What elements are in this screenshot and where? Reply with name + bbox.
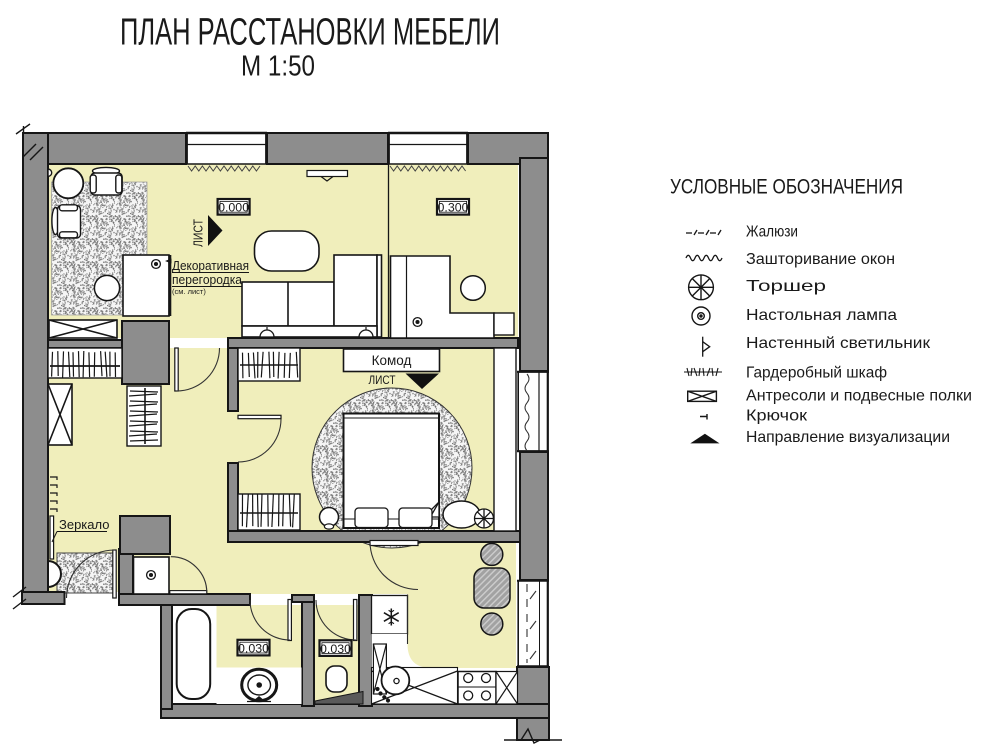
svg-text:0.030: 0.030 bbox=[238, 641, 269, 655]
svg-text:ЛИСТ: ЛИСТ bbox=[369, 373, 397, 387]
svg-text:Декоративная: Декоративная bbox=[172, 258, 249, 273]
svg-text:ЛИСТ: ЛИСТ bbox=[191, 219, 206, 247]
svg-text:Настенный светильник: Настенный светильник bbox=[746, 335, 931, 352]
svg-text:Крючок: Крючок bbox=[746, 408, 808, 425]
svg-text:Настольная лампа: Настольная лампа bbox=[746, 307, 897, 324]
svg-text:(см. лист): (см. лист) bbox=[172, 287, 206, 296]
svg-text:перегородка: перегородка bbox=[172, 272, 243, 287]
svg-text:Зеркало: Зеркало bbox=[59, 517, 109, 532]
svg-text:М 1:50: М 1:50 bbox=[241, 51, 315, 83]
svg-text:0.000: 0.000 bbox=[218, 201, 249, 215]
svg-text:Гардеробный шкаф: Гардеробный шкаф bbox=[746, 365, 887, 382]
svg-text:Жалюзи: Жалюзи bbox=[746, 224, 798, 241]
svg-text:УСЛОВНЫЕ ОБОЗНАЧЕНИЯ: УСЛОВНЫЕ ОБОЗНАЧЕНИЯ bbox=[670, 176, 903, 199]
svg-text:Торшер: Торшер bbox=[746, 278, 826, 295]
svg-text:Антресоли и подвесные полки: Антресоли и подвесные полки bbox=[746, 388, 972, 405]
svg-text:ПЛАН РАССТАНОВКИ МЕБЕЛИ: ПЛАН РАССТАНОВКИ МЕБЕЛИ bbox=[120, 12, 500, 54]
svg-text:Комод: Комод bbox=[372, 353, 412, 368]
svg-text:0.300: 0.300 bbox=[437, 201, 468, 215]
svg-text:0.030: 0.030 bbox=[320, 642, 351, 656]
svg-text:Зашторивание окон: Зашторивание окон bbox=[746, 251, 895, 268]
svg-text:Направление визуализации: Направление визуализации bbox=[746, 429, 950, 446]
